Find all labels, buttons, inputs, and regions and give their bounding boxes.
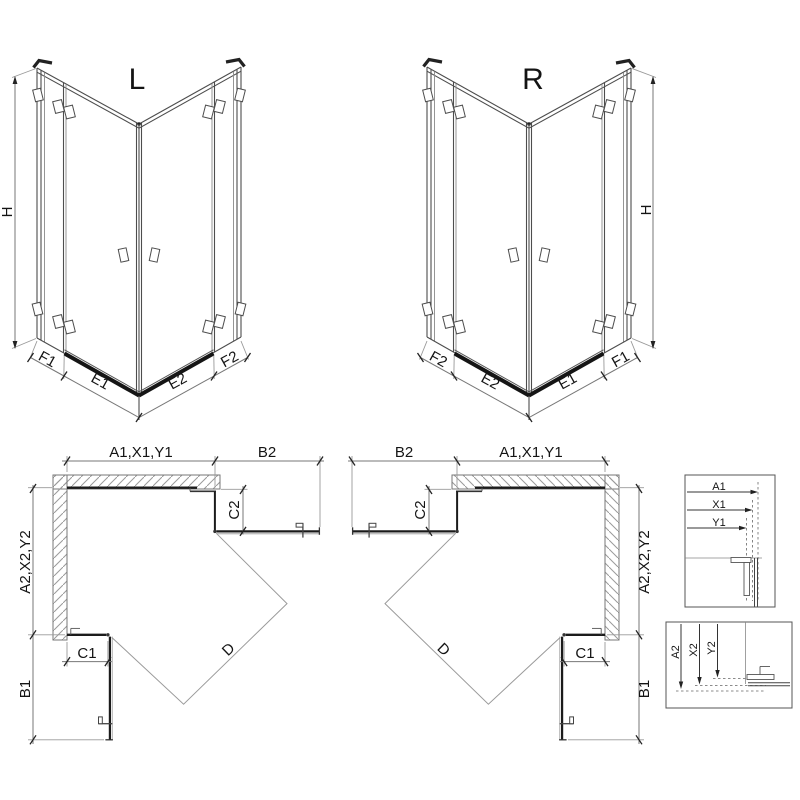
plan-right-b1-label: B1 <box>636 680 653 698</box>
detail-depth-y2-label: Y2 <box>706 641 718 654</box>
plan-view-left <box>28 456 324 744</box>
detail-box-width <box>685 475 775 607</box>
iso-left-height-label: H <box>0 207 16 218</box>
drawing-canvas: L H F1 E1 E2 F2 R H F2 E2 E1 F1 A1,X1,Y1… <box>0 0 800 800</box>
iso-right-f1-label: F1 <box>609 348 633 371</box>
plan-left-c2-label: C2 <box>226 500 243 519</box>
iso-left-f1-label: F1 <box>35 348 59 371</box>
iso-left-f2-label: F2 <box>218 348 242 371</box>
plan-view-right <box>348 456 644 744</box>
iso-left-title: L <box>129 63 146 96</box>
detail-width-x1-label: X1 <box>712 499 725 511</box>
detail-depth-profile <box>747 667 790 686</box>
plan-right-c2-label: C2 <box>412 500 429 519</box>
iso-right-height-label: H <box>638 205 655 216</box>
plan-left-width-label: A1,X1,Y1 <box>109 444 172 461</box>
plan-left-b1-label: B1 <box>17 680 34 698</box>
detail-depth-dashed <box>676 679 766 692</box>
plan-right-depth-label: A2,X2,Y2 <box>636 530 653 593</box>
technical-drawing-page: L H F1 E1 E2 F2 R H F2 E2 E1 F1 A1,X1,Y1… <box>0 0 800 800</box>
plan-right-d-label: D <box>434 640 454 660</box>
plan-left-c1-label: C1 <box>77 645 96 662</box>
detail-box-depth <box>666 622 792 708</box>
detail-depth-x2-label: X2 <box>688 643 700 656</box>
plan-right-c1-label: C1 <box>575 645 594 662</box>
iso-right-e1-label: E1 <box>556 370 580 394</box>
plan-right-width-label: A1,X1,Y1 <box>499 444 562 461</box>
iso-right-e2-label: E2 <box>478 370 502 394</box>
iso-right-title: R <box>522 63 544 96</box>
plan-left-d-label: D <box>219 640 239 660</box>
iso-right-f2-label: F2 <box>426 348 450 371</box>
detail-width-profile <box>731 558 758 607</box>
iso-left-e2-label: E2 <box>166 370 190 394</box>
detail-depth-a2-label: A2 <box>670 645 682 658</box>
plan-left-depth-label: A2,X2,Y2 <box>17 530 34 593</box>
detail-width-a1-label: A1 <box>712 481 725 493</box>
iso-left-e1-label: E1 <box>88 370 112 394</box>
detail-width-y1-label: Y1 <box>712 517 725 529</box>
plan-right-b2-label: B2 <box>395 444 413 461</box>
plan-left-b2-label: B2 <box>258 444 276 461</box>
